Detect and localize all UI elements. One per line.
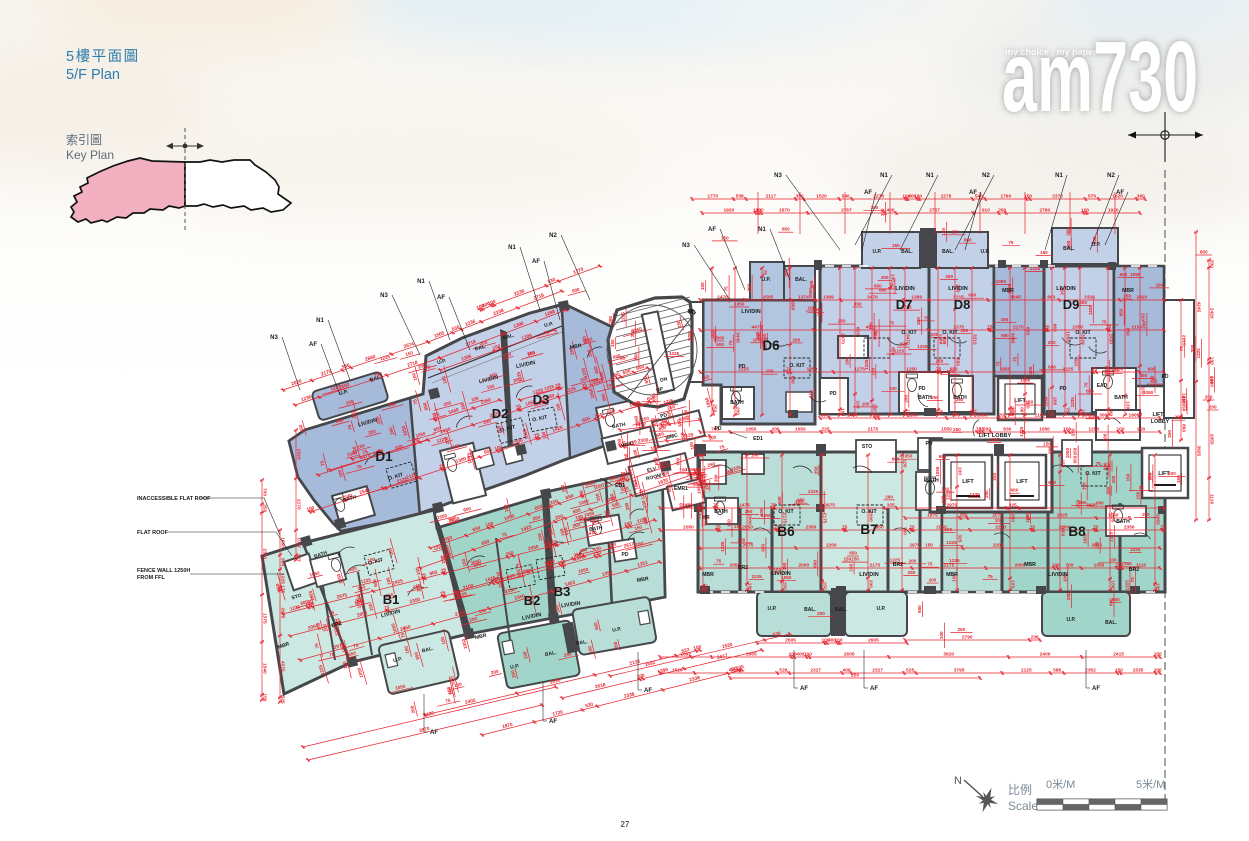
svg-text:5米/M: 5米/M: [1136, 778, 1165, 791]
svg-text:N: N: [954, 775, 962, 787]
svg-text:0米/M: 0米/M: [1046, 778, 1075, 791]
svg-text:27: 27: [621, 820, 630, 829]
svg-text:Scale: Scale: [1008, 799, 1038, 813]
svg-text:比例: 比例: [1008, 783, 1032, 797]
